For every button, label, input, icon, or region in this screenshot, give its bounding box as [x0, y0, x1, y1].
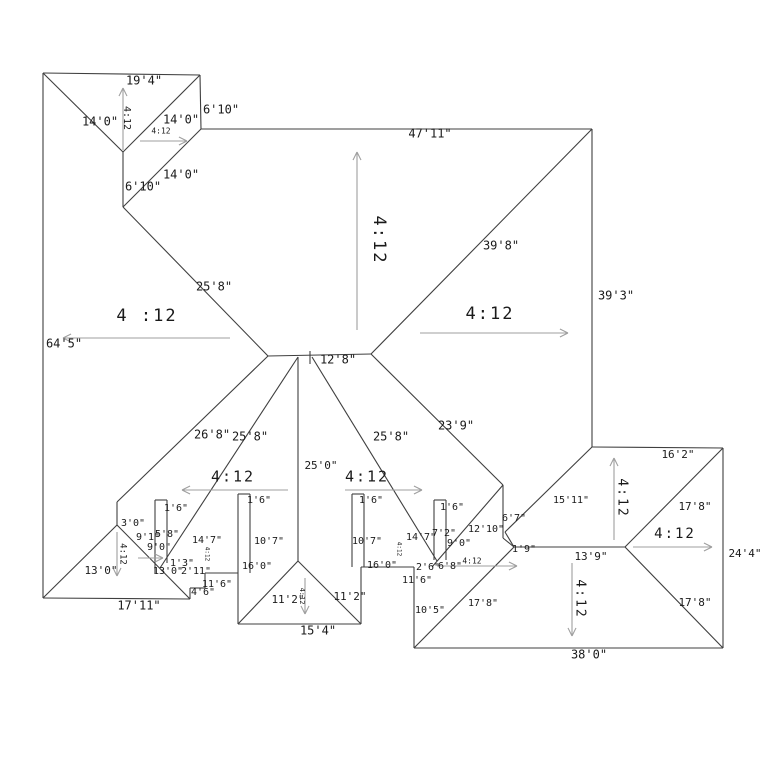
dimension-label: 10'7"	[352, 536, 382, 547]
dimension-label: 3'0"	[121, 518, 145, 529]
dimension-label: 10'7"	[254, 536, 284, 547]
dimension-label: 5'8"	[155, 529, 179, 540]
slope-arrowhead	[155, 554, 163, 558]
dimension-label: 17'8"	[678, 500, 711, 513]
roof-edge-line	[43, 73, 200, 75]
dimension-label: 14'0"	[163, 113, 199, 127]
pitch-label: 4:12	[369, 216, 389, 265]
dimension-label: 15'11"	[553, 495, 589, 506]
dimension-label: 14'0"	[82, 115, 118, 129]
dimension-label: 38'0"	[571, 648, 607, 662]
pitch-label: 4:12	[466, 304, 515, 324]
pitch-label: 4:12	[345, 468, 389, 486]
dimension-label: 13'0"	[153, 566, 183, 577]
dimension-label: 16'0"	[367, 560, 397, 571]
dimension-label: 23'9"	[438, 419, 474, 433]
pitch-label: 4:12	[151, 127, 170, 136]
dimension-label: 25'8"	[232, 430, 268, 444]
roof-diagram-svg: 19'4"14'0"4:1214'0"6'10"4:126'10"14'0"47…	[0, 0, 768, 768]
dimension-label: 39'8"	[483, 239, 519, 253]
dimension-label: 13'0"	[84, 564, 117, 577]
dimension-label: 16'0"	[242, 561, 272, 572]
dimension-label: 19'4"	[126, 74, 162, 88]
pitch-label: 4:12	[211, 468, 255, 486]
pitch-label: 4 :12	[116, 306, 177, 326]
dimension-label: 1'6"	[164, 503, 188, 514]
dimension-label: 6'10"	[203, 103, 239, 117]
pitch-label: 4:12	[462, 557, 481, 566]
slope-arrowhead	[182, 486, 190, 490]
dimension-label: 13'9"	[574, 550, 607, 563]
dimension-label: 1'6"	[440, 502, 464, 513]
dimension-label: 2'6"	[416, 562, 440, 573]
pitch-label: 4:12	[654, 526, 696, 542]
roof-edge-line	[43, 73, 123, 152]
slope-arrowhead	[414, 486, 422, 490]
slope-arrowhead	[572, 628, 576, 636]
pitch-label: 4:12	[204, 547, 211, 562]
dimension-label: 16'2"	[661, 448, 694, 461]
dimension-label: 9'0"	[447, 538, 471, 549]
slope-arrowhead	[305, 606, 309, 614]
dimension-label: 25'8"	[373, 430, 409, 444]
slope-arrowhead	[123, 88, 127, 96]
dimension-label: 26'8"	[194, 428, 230, 442]
dimension-label: 39'3"	[598, 289, 634, 303]
slope-arrowhead	[610, 458, 614, 466]
dimension-label: 1'6"	[247, 495, 271, 506]
dimension-label: 25'0"	[304, 459, 337, 472]
slope-arrowhead	[704, 543, 712, 547]
slope-arrowhead	[509, 562, 517, 566]
dimension-label: 17'8"	[468, 598, 498, 609]
dimension-label: 6'7"	[502, 513, 526, 524]
dimension-label: 24'4"	[728, 547, 761, 560]
slope-arrowhead	[704, 547, 712, 551]
dimension-label: 25'8"	[196, 280, 232, 294]
dimension-label: 10'5"	[415, 605, 445, 616]
pitch-label: 4:12	[573, 579, 588, 618]
dimension-label: 14'0"	[163, 168, 199, 182]
slope-arrowhead	[301, 606, 305, 614]
dimension-label: 1'9"	[512, 544, 536, 555]
slope-arrowhead	[560, 329, 568, 333]
dimension-label: 1'6"	[359, 495, 383, 506]
roof-edge-line	[43, 525, 117, 598]
dimension-label: 6'10"	[125, 180, 161, 194]
slope-arrowhead	[568, 628, 572, 636]
dimension-label: 11'6"	[402, 575, 432, 586]
pitch-label: 4:12	[396, 542, 403, 557]
dimension-label: 6'8"	[438, 561, 462, 572]
slope-arrowhead	[509, 566, 517, 570]
slope-arrowhead	[414, 490, 422, 494]
pitch-label: 4:12	[615, 478, 630, 517]
dimension-label: 17'8"	[678, 596, 711, 609]
dimension-label: 12'8"	[320, 353, 356, 367]
roof-edge-line	[592, 447, 723, 448]
roof-edge-line	[200, 75, 201, 129]
pitch-label: 4:12	[118, 543, 128, 565]
dimension-label: 47'11"	[408, 127, 451, 141]
slope-arrowhead	[182, 490, 190, 494]
pitch-label: 4:12	[298, 588, 306, 605]
slope-arrowhead	[179, 137, 187, 141]
slope-arrowhead	[155, 558, 163, 562]
pitch-label: 4:12	[121, 106, 132, 130]
slope-arrowhead	[117, 568, 121, 576]
dimension-label: 17'11"	[117, 599, 160, 613]
slope-arrowhead	[353, 152, 357, 160]
dimension-label: 64'5"	[46, 337, 82, 351]
dimension-label: 15'4"	[300, 624, 336, 638]
slope-arrowhead	[614, 458, 618, 466]
slope-arrowhead	[357, 152, 361, 160]
slope-arrowhead	[119, 88, 123, 96]
slope-arrowhead	[560, 333, 568, 337]
dimension-label: 4'6"	[191, 587, 215, 598]
dimension-label: 9'0"	[147, 542, 171, 553]
dimension-label: 11'2"	[333, 590, 366, 603]
dimension-label: 12'10"	[468, 524, 504, 535]
roof-plan-diagram: 19'4"14'0"4:1214'0"6'10"4:126'10"14'0"47…	[0, 0, 768, 768]
dimension-label: 14'7"	[192, 535, 222, 546]
dimension-label: 2'11"	[181, 566, 211, 577]
